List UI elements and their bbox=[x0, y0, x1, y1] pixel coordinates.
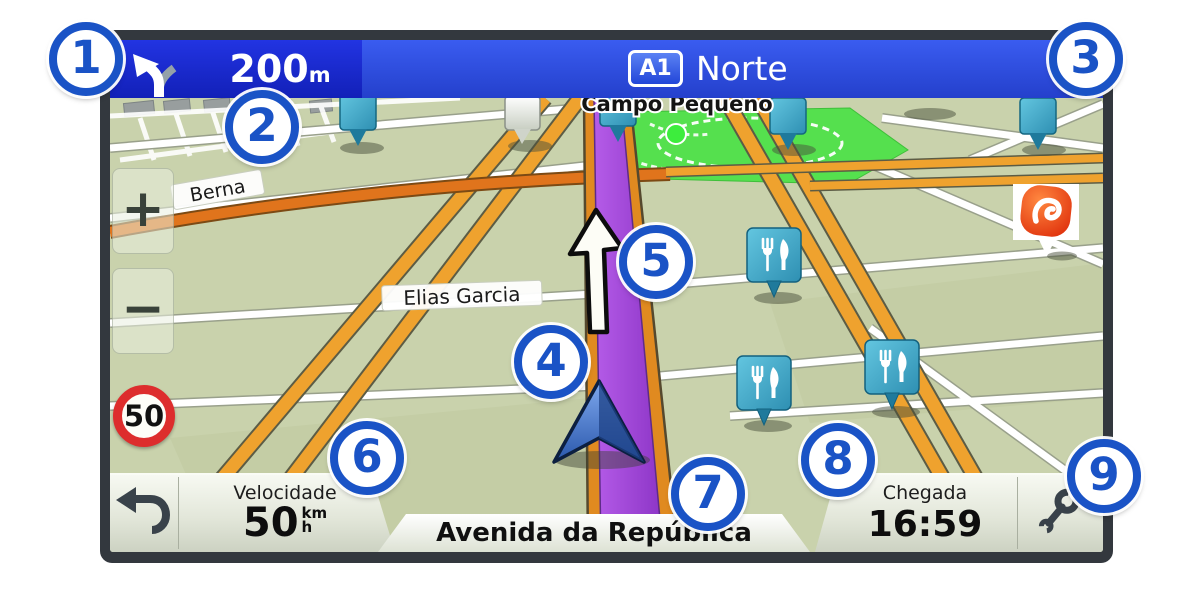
callout-4: 4 bbox=[514, 325, 588, 399]
callout-6: 6 bbox=[330, 421, 404, 495]
back-button[interactable] bbox=[114, 483, 174, 545]
zoom-out-button[interactable]: − bbox=[112, 268, 174, 354]
callout-8: 8 bbox=[801, 423, 875, 497]
next-road-name: Norte bbox=[696, 48, 788, 90]
arrival-time-value[interactable]: 16:59 bbox=[840, 504, 1010, 545]
distance-to-turn: 200m bbox=[210, 47, 350, 97]
road-shield-badge: A1 bbox=[628, 50, 683, 87]
street-label-elias-garcia: Elias Garcia bbox=[403, 282, 521, 310]
speed-limit-sign: 50 bbox=[113, 385, 175, 447]
destination-dot bbox=[666, 124, 686, 144]
callout-5: 5 bbox=[619, 225, 693, 299]
callout-9: 9 bbox=[1067, 439, 1141, 513]
callout-2: 2 bbox=[225, 90, 299, 164]
current-street-plate[interactable]: Avenida da República bbox=[378, 514, 810, 552]
callout-7: 7 bbox=[671, 457, 745, 531]
area-label: Campo Pequeno bbox=[581, 98, 772, 116]
divider bbox=[178, 477, 179, 549]
next-turn-panel[interactable]: 200m bbox=[110, 40, 362, 98]
callout-1: 1 bbox=[49, 22, 123, 96]
zoom-in-button[interactable]: + bbox=[112, 168, 174, 254]
callout-3: 3 bbox=[1049, 22, 1123, 96]
next-road-panel[interactable]: A1 Norte bbox=[362, 40, 1103, 98]
speed-field-value[interactable]: 50 km h bbox=[200, 502, 370, 544]
turn-fork-left-icon bbox=[124, 43, 190, 97]
arrival-field-label[interactable]: Chegada bbox=[850, 482, 1000, 504]
divider bbox=[1017, 477, 1018, 549]
